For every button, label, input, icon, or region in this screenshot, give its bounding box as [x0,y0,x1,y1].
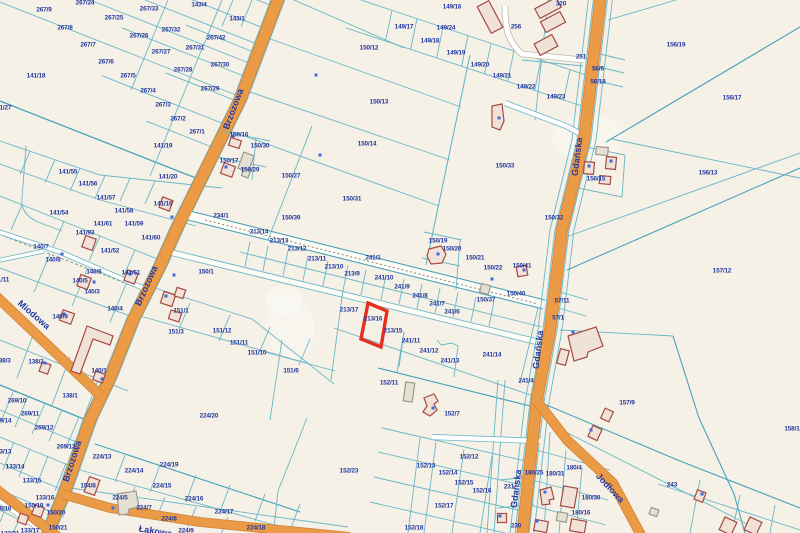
svg-text:152/13: 152/13 [417,463,436,470]
svg-text:141/20: 141/20 [159,174,178,181]
svg-text:150/21: 150/21 [466,255,485,262]
svg-text:224/8: 224/8 [161,516,177,523]
svg-text:241/4: 241/4 [518,378,534,385]
svg-text:213/16: 213/16 [364,316,383,323]
svg-text:224/15: 224/15 [153,483,172,490]
svg-text:180/25: 180/25 [525,470,544,477]
svg-text:224/5: 224/5 [112,495,128,502]
svg-text:267/42: 267/42 [207,35,226,42]
svg-text:143/4: 143/4 [191,2,207,9]
svg-text:150/30: 150/30 [251,143,270,150]
svg-text:157/9: 157/9 [619,400,635,407]
svg-text:150/19: 150/19 [25,503,44,510]
svg-text:241/7: 241/7 [429,301,445,308]
svg-text:180/16: 180/16 [572,510,591,517]
svg-text:156/19: 156/19 [667,42,686,49]
svg-text:213/17: 213/17 [340,307,359,314]
svg-text:150/31: 150/31 [343,196,362,203]
svg-text:156/17: 156/17 [723,95,742,102]
svg-text:241/14: 241/14 [483,352,502,359]
svg-text:224/13: 224/13 [93,454,112,461]
svg-text:151/6: 151/6 [283,368,299,375]
svg-text:141/19: 141/19 [154,143,173,150]
svg-text:141/52: 141/52 [101,248,120,255]
svg-text:57/11: 57/11 [555,298,570,305]
svg-text:213/10: 213/10 [325,264,344,271]
svg-text:267/1: 267/1 [189,129,205,136]
svg-text:150/19: 150/19 [429,238,448,245]
svg-text:150/41: 150/41 [513,263,532,270]
svg-text:154/8: 154/8 [80,483,96,490]
svg-text:149/16: 149/16 [443,4,462,11]
svg-text:152/17: 152/17 [435,503,454,510]
svg-text:230: 230 [511,523,522,530]
svg-text:149/23: 149/23 [547,94,566,101]
svg-text:267/7: 267/7 [80,42,96,49]
svg-text:320: 320 [556,1,567,8]
svg-text:152/16: 152/16 [473,488,492,495]
svg-text:267/3: 267/3 [155,102,171,109]
svg-text:243: 243 [667,482,678,489]
svg-text:267/32: 267/32 [162,27,181,34]
svg-text:150/29: 150/29 [241,167,260,174]
svg-text:267/26: 267/26 [130,33,149,40]
svg-text:213/11: 213/11 [308,256,327,263]
svg-text:149/24: 149/24 [437,25,456,32]
svg-text:150/32: 150/32 [545,215,564,222]
svg-text:149/22: 149/22 [517,84,536,91]
svg-text:151/11: 151/11 [230,340,249,347]
svg-text:138/1: 138/1 [62,393,78,400]
svg-text:141/27: 141/27 [0,105,12,112]
svg-text:269/11: 269/11 [21,411,40,418]
svg-text:150/17: 150/17 [220,158,239,165]
svg-text:152/11: 152/11 [380,380,399,387]
svg-text:150/16: 150/16 [230,132,249,139]
svg-text:151/10: 151/10 [248,350,267,357]
svg-text:138/2: 138/2 [28,359,44,366]
svg-text:267/2: 267/2 [170,116,186,123]
svg-text:224/9: 224/9 [178,528,194,533]
svg-text:149/17: 149/17 [395,24,414,31]
svg-text:140/6: 140/6 [86,269,102,276]
svg-text:267/5: 267/5 [120,73,136,80]
svg-text:269/12: 269/12 [35,425,54,432]
svg-text:213/13: 213/13 [270,238,289,245]
svg-text:150/22: 150/22 [484,265,503,272]
svg-text:241/1: 241/1 [365,255,381,262]
svg-text:133/14: 133/14 [6,464,25,471]
svg-text:213/15: 213/15 [384,328,403,335]
svg-text:150/14: 150/14 [358,141,377,148]
svg-text:156/15: 156/15 [587,176,606,183]
svg-text:234/1: 234/1 [213,213,229,220]
svg-text:140/1: 140/1 [91,368,107,375]
svg-text:140/9: 140/9 [52,314,68,321]
svg-text:224/18: 224/18 [247,525,266,532]
svg-text:149/21: 149/21 [493,73,512,80]
svg-text:241/10: 241/10 [375,275,394,282]
svg-text:224/17: 224/17 [215,509,234,516]
svg-text:141/56: 141/56 [79,181,98,188]
svg-text:180/31: 180/31 [546,471,565,478]
svg-text:224/14: 224/14 [125,468,144,475]
svg-text:150/20: 150/20 [47,510,66,517]
svg-text:141/16: 141/16 [154,201,173,208]
svg-text:213/14: 213/14 [250,229,269,236]
svg-text:151/1: 151/1 [173,308,189,315]
svg-text:150/20: 150/20 [443,246,462,253]
svg-text:150/13: 150/13 [370,99,389,106]
svg-text:140/7: 140/7 [33,244,49,251]
svg-text:141/11: 141/11 [0,277,10,284]
svg-text:224/16: 224/16 [185,496,204,503]
svg-text:224/20: 224/20 [200,413,219,420]
svg-text:141/55: 141/55 [59,169,78,176]
svg-text:141/18: 141/18 [27,73,46,80]
svg-text:180/30: 180/30 [582,495,601,502]
svg-text:150/37: 150/37 [477,297,496,304]
svg-text:141/59: 141/59 [125,221,144,228]
svg-text:133/13: 133/13 [0,449,12,456]
svg-text:267/31: 267/31 [186,45,205,52]
svg-text:141/60: 141/60 [142,235,161,242]
svg-text:256: 256 [511,24,522,31]
svg-text:251: 251 [576,54,587,61]
svg-text:269/10: 269/10 [8,398,27,405]
svg-text:241/9: 241/9 [394,284,410,291]
svg-text:141/93: 141/93 [76,230,95,237]
svg-text:141/51: 141/51 [122,270,141,277]
svg-text:152/7: 152/7 [444,411,460,418]
svg-text:267/28: 267/28 [174,67,193,74]
svg-text:213/9: 213/9 [344,271,360,278]
svg-text:150/39: 150/39 [282,215,301,222]
svg-text:143/1: 143/1 [229,16,245,23]
svg-text:267/30: 267/30 [211,62,230,69]
svg-text:267/6: 267/6 [98,59,114,66]
svg-text:151/3: 151/3 [168,329,184,336]
svg-text:140/3: 140/3 [84,289,100,296]
svg-text:56/18: 56/18 [590,79,606,86]
svg-text:224/7: 224/7 [136,505,152,512]
svg-text:267/33: 267/33 [140,6,159,13]
svg-text:267/25: 267/25 [105,15,124,22]
svg-text:140/4: 140/4 [107,306,123,313]
svg-text:267/29: 267/29 [201,86,220,93]
svg-text:156/13: 156/13 [699,170,718,177]
svg-text:133/17: 133/17 [21,528,40,533]
svg-text:241/12: 241/12 [420,348,439,355]
svg-text:267/27: 267/27 [152,49,171,56]
svg-text:133/15: 133/15 [23,478,42,485]
svg-text:152/23: 152/23 [340,468,359,475]
svg-text:241/13: 241/13 [441,358,460,365]
svg-text:141/57: 141/57 [97,195,116,202]
svg-text:151/12: 151/12 [213,328,232,335]
svg-text:150/40: 150/40 [507,291,526,298]
svg-text:138/16: 138/16 [0,506,12,513]
svg-text:149/20: 149/20 [471,62,490,69]
svg-text:241/8: 241/8 [412,293,428,300]
svg-text:140/8: 140/8 [45,257,61,264]
svg-text:269/14: 269/14 [0,418,12,425]
svg-text:57/1: 57/1 [552,315,564,322]
svg-text:56/6: 56/6 [592,66,604,73]
svg-text:141/61: 141/61 [94,221,113,228]
svg-text:158/1: 158/1 [784,426,800,433]
svg-text:267/9: 267/9 [36,7,52,14]
svg-text:150/33: 150/33 [496,163,515,170]
svg-text:140/5: 140/5 [72,278,88,285]
svg-text:149/19: 149/19 [447,50,466,57]
svg-text:267/4: 267/4 [140,88,156,95]
svg-text:241/6: 241/6 [444,309,460,316]
svg-text:150/12: 150/12 [360,45,379,52]
svg-text:267/24: 267/24 [76,0,95,7]
svg-text:152/14: 152/14 [439,470,458,477]
svg-text:149/18: 149/18 [421,38,440,45]
svg-text:152/15: 152/15 [455,480,474,487]
svg-text:133/16: 133/16 [36,495,55,502]
svg-text:150/1: 150/1 [198,269,214,276]
svg-text:180/4: 180/4 [566,465,582,472]
svg-text:138/3: 138/3 [0,358,11,365]
svg-text:141/54: 141/54 [50,210,69,217]
svg-text:152/12: 152/12 [460,454,479,461]
svg-text:150/27: 150/27 [282,173,301,180]
svg-text:267/8: 267/8 [57,25,73,32]
svg-text:150/21: 150/21 [49,525,68,532]
svg-text:224/19: 224/19 [160,462,179,469]
svg-text:241/11: 241/11 [402,338,421,345]
svg-text:152/18: 152/18 [405,525,424,532]
svg-text:157/12: 157/12 [713,268,732,275]
svg-text:141/58: 141/58 [115,208,134,215]
svg-text:213/12: 213/12 [288,246,307,253]
